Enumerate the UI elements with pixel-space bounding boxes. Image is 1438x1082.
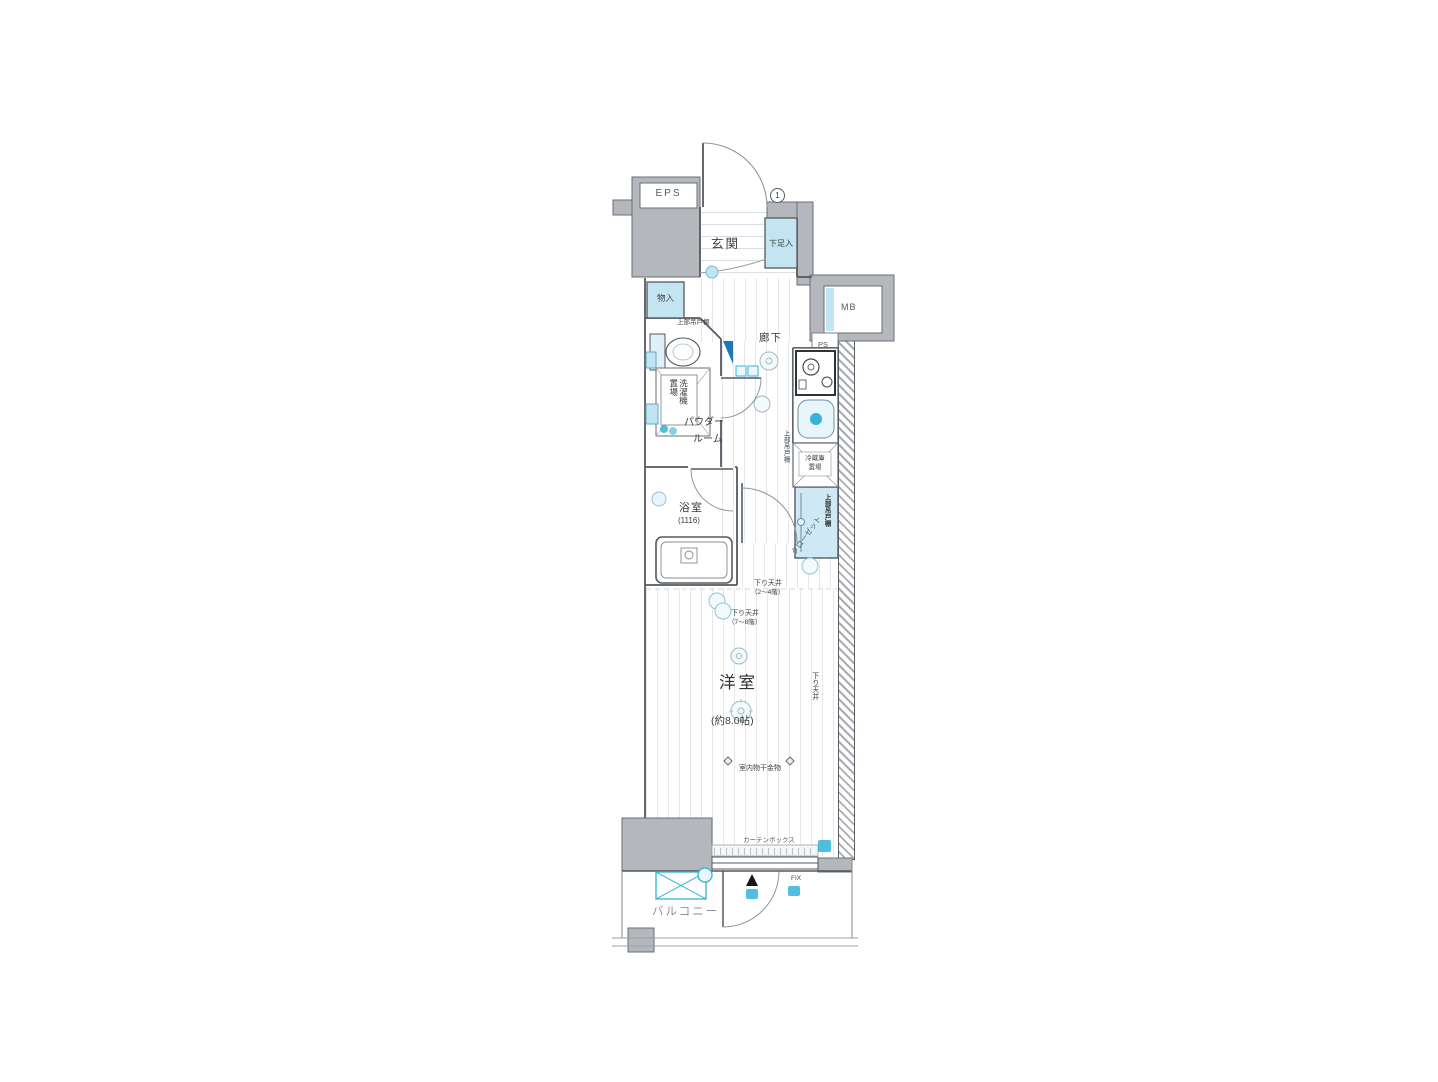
label-upper-cabinet-toilet: 上部吊戸棚: [677, 319, 710, 326]
label-down-ceiling-1: 下り天井: [754, 580, 782, 588]
evacuation-hatch: [656, 868, 712, 899]
label-curtain-box: カーテンボックス: [743, 837, 795, 844]
entrance-door: [703, 143, 767, 207]
label-upper-cabinet-kitchen: 上部吊戸棚: [782, 430, 789, 474]
label-down-ceiling-2: 下り天井: [731, 610, 759, 618]
window-band: [712, 857, 818, 869]
powder-room-door: [721, 378, 761, 418]
switch-symbols: [736, 366, 758, 376]
kitchen: [793, 348, 838, 443]
wall-cabinet-wedge: [723, 341, 733, 364]
label-closet-shelf: 上部吊戸棚: [823, 494, 830, 540]
label-ps: PS: [818, 341, 828, 349]
label-down-ceiling-right: 下り天井: [811, 672, 819, 720]
label-balcony: バルコニー: [652, 906, 719, 919]
label-storage: 物入: [647, 294, 684, 303]
toilet: [650, 334, 700, 370]
curtain-box-ticks: [714, 848, 812, 855]
bathtub: [656, 537, 732, 583]
label-mb: MB: [841, 303, 857, 313]
label-eps: EPS: [640, 188, 697, 199]
label-powder-room-1: パウダー: [684, 417, 724, 428]
label-main-room-size: (約8.0帖): [711, 716, 754, 728]
bath-stool: [652, 492, 666, 506]
label-powder-room-2: ルーム: [693, 434, 723, 445]
label-bathroom: 浴室: [679, 502, 703, 514]
label-fix-window: FIX: [791, 875, 801, 882]
label-shoe-box: 下足入: [766, 240, 796, 249]
main-room-door: [742, 483, 797, 543]
entrance-door-number: 1: [770, 188, 785, 203]
label-fridge-2: 置場: [800, 464, 830, 471]
label-entrance: 玄関: [711, 238, 740, 252]
north-triangle-marker: [746, 874, 758, 886]
label-main-room: 洋室: [719, 674, 758, 692]
label-fridge-1: 冷蔵庫: [800, 455, 830, 462]
entry-step-light: [706, 266, 718, 278]
label-laundry-space: 洗濯機置場: [668, 379, 688, 411]
label-bathroom-size: (1116): [678, 517, 700, 526]
label-hallway: 廊下: [759, 333, 782, 345]
floor-plan: EPS 1 玄関 下足入 MB PS 物入 廊下 上部吊戸棚 洗濯機置場 パウダ…: [0, 0, 1438, 1082]
label-down-ceiling-2-note: （7～8階）: [728, 619, 761, 626]
laundry-hooks: [724, 757, 794, 765]
label-drying-fixture: 室内物干金物: [739, 765, 781, 773]
label-down-ceiling-1-note: （2～4階）: [751, 589, 784, 596]
